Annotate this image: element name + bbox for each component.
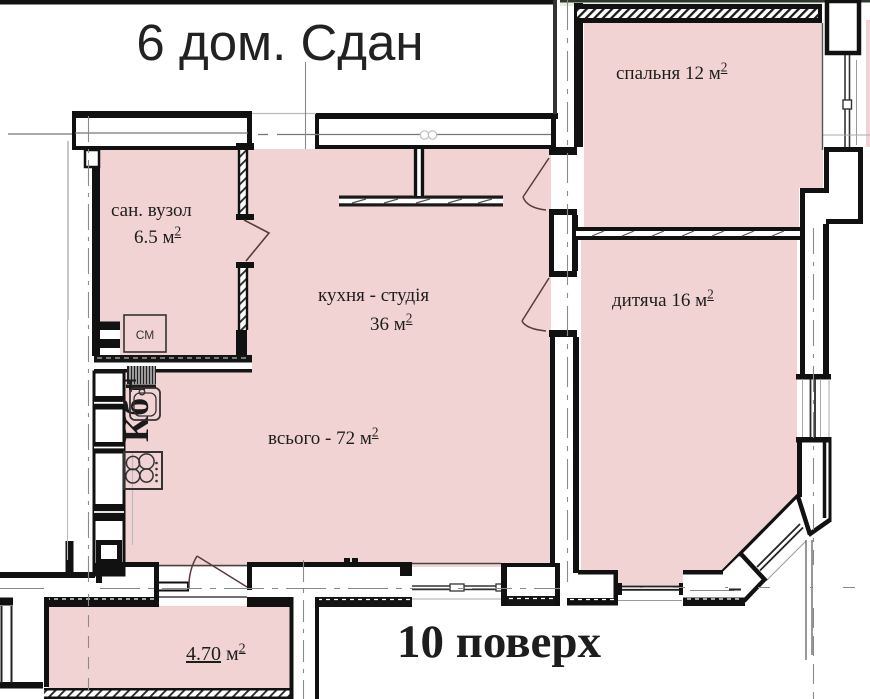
svg-text:СМ: СМ [136,328,155,342]
